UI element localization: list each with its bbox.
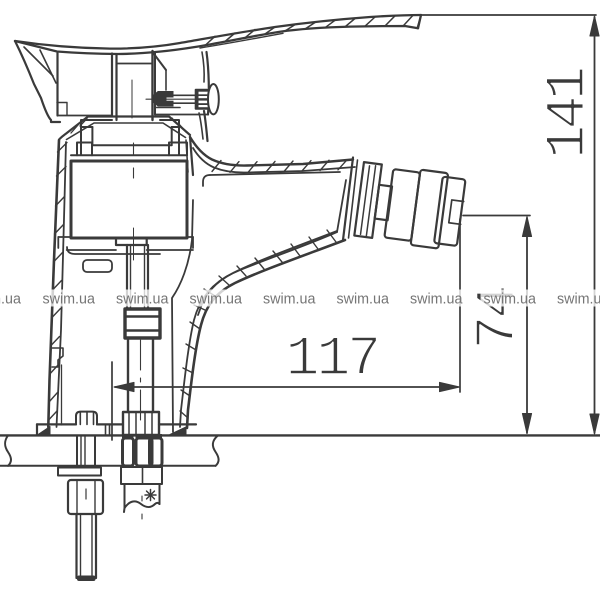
svg-text:swim.ua: swim.ua bbox=[190, 292, 242, 308]
svg-text:swim.ua: swim.ua bbox=[43, 292, 95, 308]
svg-text:141: 141 bbox=[536, 69, 600, 159]
svg-text:swim.ua: swim.ua bbox=[337, 292, 389, 308]
svg-text:swim.ua: swim.ua bbox=[484, 292, 536, 308]
svg-text:swim.ua: swim.ua bbox=[557, 292, 600, 308]
svg-text:swim.ua: swim.ua bbox=[263, 292, 315, 308]
svg-text:swim.ua: swim.ua bbox=[0, 292, 21, 308]
svg-text:swim.ua: swim.ua bbox=[410, 292, 462, 308]
svg-text:117: 117 bbox=[286, 327, 378, 391]
svg-text:swim.ua: swim.ua bbox=[116, 292, 168, 308]
